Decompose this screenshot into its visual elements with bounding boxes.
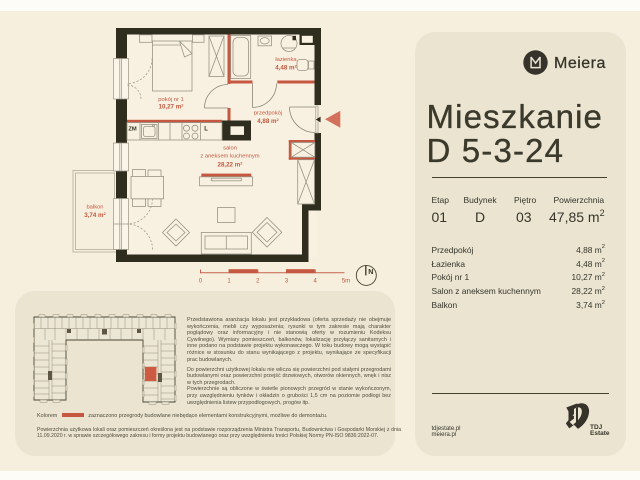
- svg-text:1: 1: [227, 279, 231, 285]
- svg-text:4: 4: [314, 279, 318, 285]
- svg-text:łazienka: łazienka: [275, 57, 297, 63]
- svg-text:balkon: balkon: [86, 205, 103, 211]
- svg-text:10,27 m2: 10,27 m2: [159, 103, 185, 111]
- svg-text:0: 0: [199, 279, 203, 285]
- svg-text:3,74 m2: 3,74 m2: [84, 211, 106, 219]
- svg-text:2: 2: [256, 279, 260, 285]
- svg-text:z aneksem kuchennym: z aneksem kuchennym: [200, 154, 259, 160]
- svg-text:L: L: [204, 127, 208, 133]
- svg-text:3: 3: [285, 279, 289, 285]
- svg-text:28,22 m2: 28,22 m2: [218, 161, 244, 169]
- svg-text:5m: 5m: [342, 279, 350, 285]
- svg-text:salon: salon: [223, 146, 237, 152]
- svg-text:przedpokój: przedpokój: [254, 111, 282, 117]
- svg-text:4,48 m2: 4,48 m2: [275, 64, 297, 72]
- svg-text:N: N: [368, 269, 373, 276]
- svg-text:4,88 m2: 4,88 m2: [257, 117, 279, 125]
- svg-text:ZM: ZM: [128, 127, 137, 133]
- svg-text:pokój nr 1: pokój nr 1: [158, 97, 183, 103]
